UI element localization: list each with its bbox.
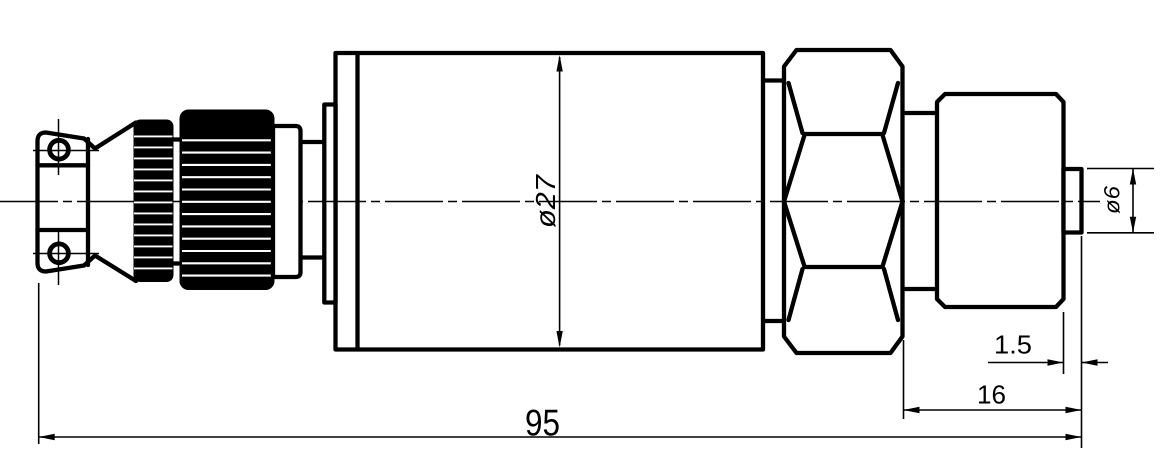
svg-text:95: 95 — [525, 403, 560, 444]
svg-text:ø27: ø27 — [530, 173, 561, 228]
svg-text:1.5: 1.5 — [994, 330, 1032, 360]
svg-text:16: 16 — [977, 380, 1006, 410]
svg-text:ø6: ø6 — [1100, 185, 1125, 214]
